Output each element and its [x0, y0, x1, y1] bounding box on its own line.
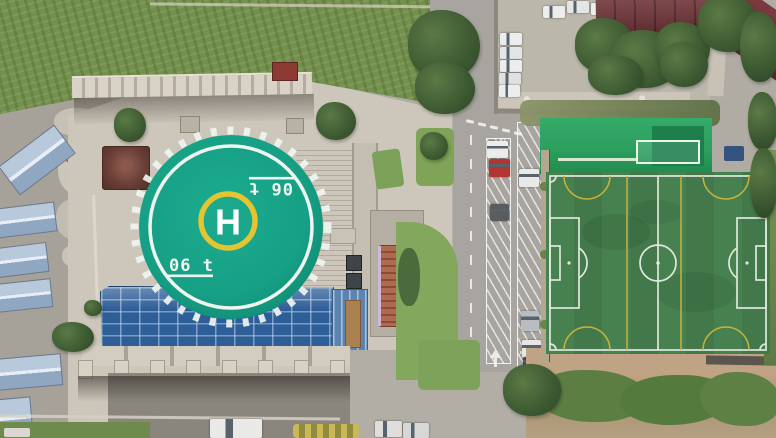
- tree: [750, 148, 776, 218]
- shed-roof: [0, 353, 63, 391]
- car: [543, 6, 565, 18]
- car: [487, 141, 508, 158]
- bushes: [398, 248, 420, 306]
- helipad-letter: H: [215, 202, 241, 243]
- helipad: H 06 t 06 t: [125, 121, 337, 333]
- car: [403, 423, 429, 438]
- car: [519, 169, 539, 187]
- rooftop-line: [558, 158, 636, 161]
- tree: [84, 300, 102, 316]
- tree: [503, 364, 561, 416]
- shed-roof: [0, 278, 53, 313]
- dark-vehicle: [724, 146, 744, 161]
- aerial-photo: H 06 t 06 t: [0, 0, 776, 438]
- car: [375, 421, 402, 437]
- lane-dashed-line: [470, 135, 472, 355]
- white-van: [210, 419, 262, 438]
- tree: [588, 55, 643, 95]
- svg-text:06 t: 06 t: [169, 256, 214, 276]
- red-structure: [272, 62, 298, 81]
- roof-vent: [346, 255, 362, 271]
- car: [567, 1, 589, 13]
- tree: [740, 12, 776, 82]
- shed-roof: [0, 242, 50, 278]
- parking-bays-right: [517, 122, 542, 368]
- svg-text:06 t: 06 t: [248, 178, 293, 198]
- tree: [52, 322, 94, 352]
- roof-vent: [346, 273, 362, 289]
- white-objects: [4, 428, 30, 437]
- yellow-hedge: [293, 424, 359, 438]
- weight-marking-top-rotated: 06 t: [248, 177, 295, 198]
- soccer-field: [546, 172, 770, 354]
- tree: [415, 62, 475, 114]
- car: [500, 60, 522, 72]
- car: [500, 33, 522, 45]
- car: [499, 85, 520, 97]
- lawn-patch: [371, 148, 404, 190]
- wood-strip: [345, 300, 361, 348]
- car: [499, 73, 521, 85]
- building-shadow: [78, 376, 378, 402]
- car: [521, 311, 539, 331]
- lawn-tree: [420, 132, 448, 160]
- lawn: [418, 340, 480, 390]
- car: [500, 47, 522, 59]
- tree: [748, 92, 776, 150]
- car-red: [489, 159, 510, 177]
- car: [490, 204, 509, 221]
- tree: [660, 42, 708, 87]
- weight-marking-bottom: 06 t: [167, 256, 214, 277]
- rooftop-structure: [636, 140, 700, 164]
